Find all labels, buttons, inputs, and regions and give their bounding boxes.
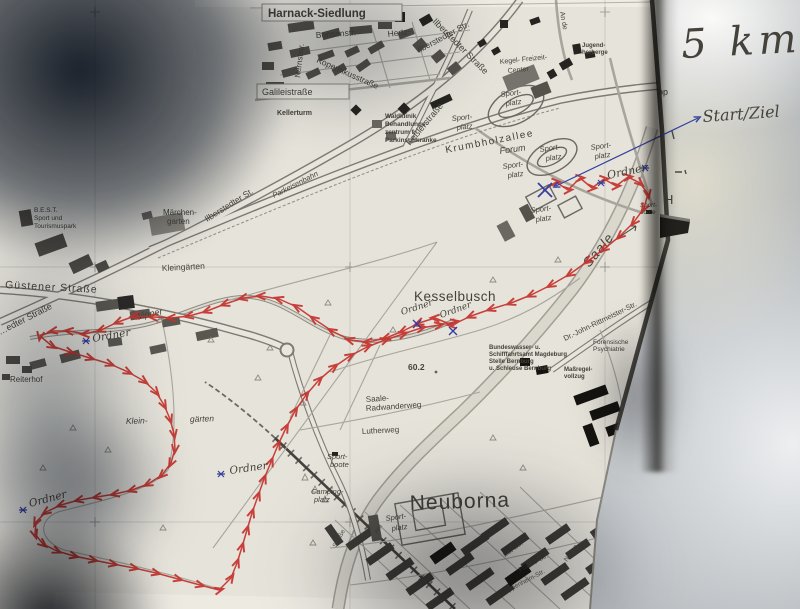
distance-label: 5 km [680,16,800,68]
label-maerchengarten-2: garten [167,217,190,226]
edge-rotated-de: de [658,88,668,98]
svg-text:boote: boote [330,460,349,469]
label-galileistrasse: Galileistraße [262,87,313,97]
label-neuborna: Neuborna [409,489,510,515]
svg-text:vollzug: vollzug [564,374,585,380]
svg-text:Maßregel-: Maßregel- [564,367,592,373]
svg-text:herberge: herberge [582,50,608,56]
start-finish-label: Start/Ziel [702,102,780,126]
map-svg: Harnack-Siedlung Bunsenstr. Hertz- Nerns… [0,0,800,609]
svg-text:Bundeswasser- u.: Bundeswasser- u. [489,345,541,351]
label-reiterhof: Reiterhof [10,375,43,384]
svg-text:Jugend-: Jugend- [582,43,605,49]
svg-text:straße: straße [594,558,609,578]
svg-text:Psychiatrie: Psychiatrie [593,346,625,353]
photo-of-course-map: Harnack-Siedlung Bunsenstr. Hertz- Nerns… [0,0,800,609]
svg-text:zentrum f.: zentrum f. [385,129,416,136]
svg-text:platz: platz [455,121,473,132]
label-harnack-siedlung: Harnack-Siedlung [268,8,366,20]
label-kellerturm: Kellerturm [277,110,312,117]
svg-text:u. Schleuse Bernburg: u. Schleuse Bernburg [489,366,551,372]
label-jugendherberge: Jugend- herberge [582,43,608,56]
label-campingplatz-2: platz [313,495,330,504]
svg-text:Sport und: Sport und [34,215,63,222]
label-maerchengarten-1: Märchen- [163,208,197,217]
svg-text:Tourismuspark: Tourismuspark [34,223,77,230]
map-paper: Harnack-Siedlung Bunsenstr. Hertz- Nerns… [0,0,680,609]
edge-h-mark: H [664,192,673,207]
label-forensische-psychiatrie: Forensische Psychiatrie [593,339,629,353]
svg-text:Waldklinik: Waldklinik [385,113,417,120]
svg-text:Schifffahrtsamt Magdeburg: Schifffahrtsamt Magdeburg [489,352,567,358]
label-height-60-2: 60.2 [408,362,425,372]
label-klein: Klein- [126,415,148,426]
svg-text:Sport-: Sport- [640,202,657,209]
label-gaerten: gärten [190,413,215,424]
svg-text:B.E.S.T.: B.E.S.T. [34,207,58,214]
svg-text:Forensische: Forensische [593,339,629,346]
svg-text:Behandlungs-: Behandlungs- [385,121,428,128]
svg-text:Stelle Bernburg: Stelle Bernburg [489,359,534,365]
svg-text:Parkinsonkranke: Parkinsonkranke [385,137,437,144]
